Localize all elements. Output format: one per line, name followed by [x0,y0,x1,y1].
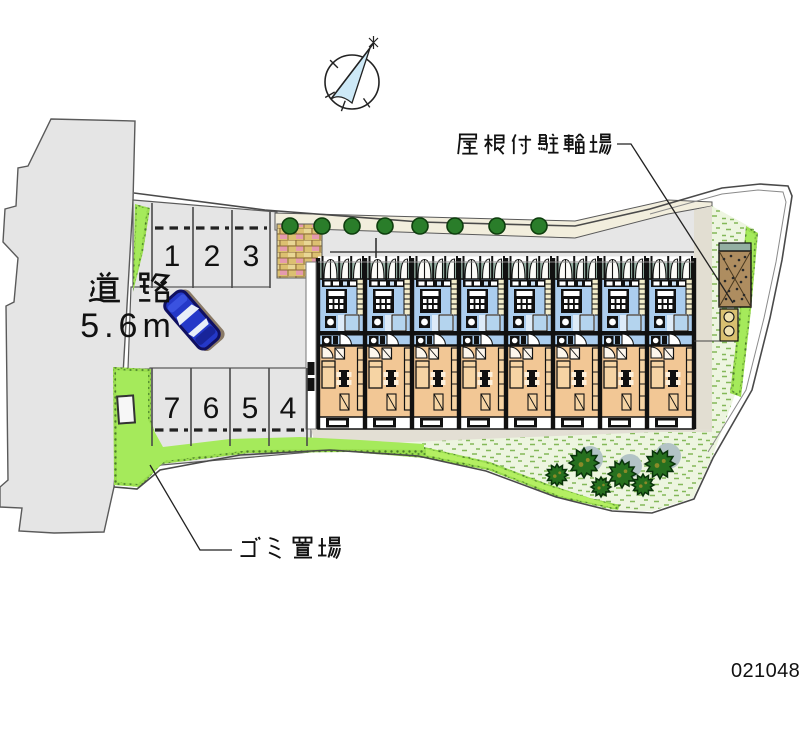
svg-text:2: 2 [204,240,221,273]
svg-text:6: 6 [203,392,220,425]
svg-text:5: 5 [242,392,259,425]
svg-text:1: 1 [164,240,181,273]
svg-text:5.6m: 5.6m [80,307,176,345]
svg-text:021048: 021048 [731,660,800,682]
svg-text:3: 3 [243,240,260,273]
svg-text:7: 7 [164,392,181,425]
svg-text:4: 4 [280,392,297,425]
